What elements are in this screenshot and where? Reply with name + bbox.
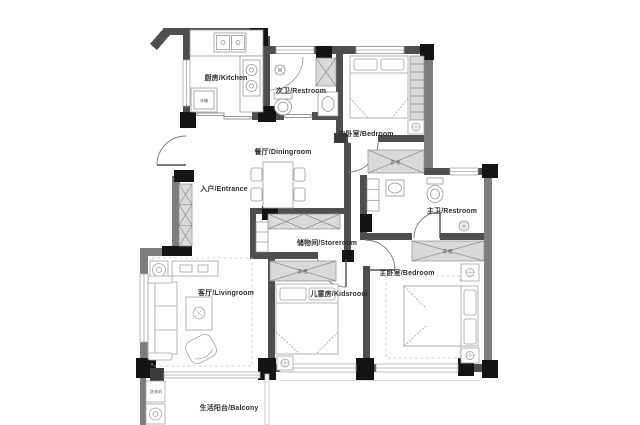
restroom2-pocket-door xyxy=(285,115,311,118)
bed xyxy=(350,56,408,118)
nightstand xyxy=(461,348,479,363)
room-label-restroom-secondary: 次卫/Restroom xyxy=(276,85,326,96)
balcony-railing xyxy=(265,374,269,425)
window xyxy=(164,372,260,378)
furniture-living xyxy=(148,258,252,366)
nightstand xyxy=(408,120,424,134)
dining-table xyxy=(263,162,293,208)
storeroom-shelf xyxy=(268,214,340,229)
furniture-bedroom-master xyxy=(386,264,479,363)
furniture-balcony xyxy=(146,374,480,425)
bed xyxy=(404,286,478,346)
dining-chair xyxy=(251,188,262,201)
toilet-icon xyxy=(427,178,443,203)
room-label-kitchen: 厨房/Kitchen xyxy=(204,72,247,83)
nightstand xyxy=(461,264,479,281)
room-label-storeroom: 储物间/Storeroom xyxy=(297,237,357,248)
washer-label: 洗衣机 xyxy=(149,388,161,394)
wardrobe-label: 衣柜 xyxy=(442,248,453,255)
bathroom-sink xyxy=(386,180,404,196)
armchair xyxy=(183,332,219,366)
entrance-shoe-cabinet xyxy=(179,184,192,246)
floor-plan-drawing xyxy=(0,0,640,425)
tv-bench xyxy=(172,261,218,276)
fridge-label: 冰箱 xyxy=(200,97,208,103)
dining-chair xyxy=(294,168,305,181)
window xyxy=(450,168,478,175)
window xyxy=(356,47,404,54)
plant-icon xyxy=(459,221,469,231)
sofa xyxy=(148,276,177,360)
dining-chair xyxy=(294,188,305,201)
room-label-restroom-master: 主卫/Restroom xyxy=(427,205,477,216)
window xyxy=(276,47,314,54)
window xyxy=(376,364,458,372)
restroom2-cabinet xyxy=(316,58,336,86)
entry-door xyxy=(157,136,186,165)
master-restroom-shelf xyxy=(367,179,379,211)
room-label-bedroom-master: 主卧室/Bedroom xyxy=(379,267,434,278)
bedroom2-wardrobe xyxy=(410,56,424,120)
coffee-table xyxy=(186,297,212,330)
floor-plan: 厨房/Kitchen 次卫/Restroom 次卧室/Bedroom 餐厅/Di… xyxy=(0,0,640,425)
master-door xyxy=(365,240,395,270)
side-table xyxy=(277,356,293,370)
window xyxy=(140,274,148,342)
toilet-icon xyxy=(274,93,292,115)
washing-machine-icon xyxy=(146,404,165,424)
room-label-entrance: 入户/Entrance xyxy=(200,183,247,194)
room-label-kids: 儿童房/Kidsroom xyxy=(310,288,367,299)
wardrobe-label: 衣柜 xyxy=(390,158,401,165)
shower-icon xyxy=(275,65,285,75)
storeroom-side-cabinet xyxy=(256,222,268,252)
wardrobe-label: 衣柜 xyxy=(297,268,308,275)
room-label-dining: 餐厅/Diningroom xyxy=(254,146,311,157)
window xyxy=(183,60,190,106)
room-label-living: 客厅/Livingroom xyxy=(198,287,254,298)
dining-chair xyxy=(251,168,262,181)
furniture-dining xyxy=(251,162,305,208)
room-label-bedroom-secondary: 次卧室/Bedroom xyxy=(338,128,393,139)
bathroom-sink xyxy=(318,92,338,116)
kitchen-sink-icon xyxy=(214,33,246,52)
room-label-balcony: 生活阳台/Balcony xyxy=(200,402,259,413)
